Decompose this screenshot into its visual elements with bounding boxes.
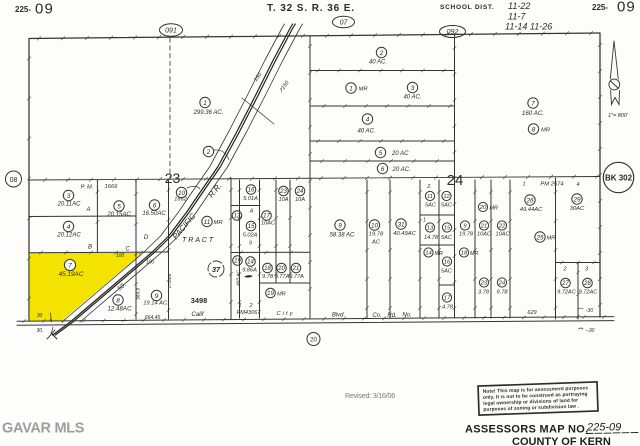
svg-text:40 AC.: 40 AC.: [369, 60, 387, 66]
svg-text:11-7: 11-7: [508, 12, 526, 22]
svg-text:MR: MR: [470, 251, 478, 257]
svg-text:A: A: [249, 209, 254, 215]
svg-text:5: 5: [117, 203, 121, 210]
svg-text:11: 11: [204, 219, 211, 226]
svg-text:09: 09: [617, 0, 636, 16]
svg-text:MR: MR: [490, 206, 498, 212]
svg-text:4: 4: [577, 182, 580, 188]
svg-text:225-: 225-: [15, 5, 31, 14]
svg-text:8: 8: [532, 126, 536, 133]
svg-text:9.72AC: 9.72AC: [579, 290, 599, 296]
svg-text:37: 37: [212, 265, 221, 274]
svg-text:16: 16: [248, 188, 255, 194]
svg-text:City: City: [277, 311, 295, 317]
svg-text:19.14 AC.: 19.14 AC.: [143, 301, 169, 307]
svg-text:9.86A: 9.86A: [242, 268, 257, 274]
svg-text:3: 3: [411, 85, 415, 92]
svg-text:3: 3: [67, 193, 71, 200]
svg-text:11: 11: [427, 194, 433, 200]
svg-text:17: 17: [444, 296, 451, 302]
svg-text:27: 27: [561, 281, 569, 287]
svg-text:10: 10: [371, 222, 379, 229]
svg-text:28: 28: [583, 281, 591, 287]
svg-text:2: 2: [249, 303, 253, 309]
svg-text:1: 1: [523, 182, 526, 188]
svg-text:25: 25: [535, 234, 544, 241]
svg-text:1: 1: [239, 303, 242, 309]
svg-text:9: 9: [338, 222, 342, 229]
svg-text:10A: 10A: [295, 197, 305, 203]
svg-text:20: 20: [479, 205, 487, 211]
svg-text:15: 15: [248, 224, 255, 230]
svg-text:ASSESSORS MAP NO.: ASSESSORS MAP NO.: [465, 424, 588, 436]
svg-text:13: 13: [427, 226, 434, 232]
svg-text:2: 2: [562, 267, 567, 273]
svg-text:5AC: 5AC: [425, 203, 437, 209]
svg-text:--30: --30: [586, 328, 595, 334]
svg-text:225-: 225-: [592, 3, 608, 12]
svg-text:5AC: 5AC: [441, 235, 453, 241]
svg-text:9: 9: [155, 293, 159, 300]
svg-text:16: 16: [444, 260, 451, 266]
svg-text:MR: MR: [547, 236, 556, 242]
svg-text:21: 21: [292, 266, 300, 272]
svg-text:20 AC.: 20 AC.: [392, 167, 411, 173]
svg-text:10AC: 10AC: [261, 221, 276, 227]
svg-text:9.72AC: 9.72AC: [557, 290, 577, 296]
svg-text:No.: No.: [402, 313, 411, 319]
svg-text:100: 100: [146, 260, 155, 266]
svg-text:19.78: 19.78: [459, 232, 474, 238]
svg-text:A: A: [85, 207, 90, 213]
svg-text:12: 12: [234, 214, 241, 220]
svg-text:21: 21: [480, 224, 487, 230]
svg-text:5.02A: 5.02A: [243, 233, 258, 239]
svg-text:369.9: 369.9: [136, 288, 142, 300]
svg-text:Co.: Co.: [372, 313, 381, 319]
svg-text:08: 08: [10, 177, 18, 184]
svg-text:MR: MR: [277, 292, 286, 298]
svg-text:11-14 11-26: 11-14 11-26: [505, 22, 552, 32]
svg-text:9.78: 9.78: [497, 290, 509, 296]
svg-text:160 AC.: 160 AC.: [522, 110, 544, 117]
svg-text:1″= 800': 1″= 800': [608, 113, 629, 119]
svg-text:12.48AC: 12.48AC: [107, 306, 132, 313]
svg-text:19: 19: [234, 259, 241, 265]
svg-text:PM43067: PM43067: [237, 310, 262, 316]
svg-text:29: 29: [572, 196, 581, 203]
svg-text:30.: 30.: [37, 328, 44, 334]
svg-text:16.50AC: 16.50AC: [142, 211, 166, 217]
svg-text:493 AC: 493 AC: [236, 270, 242, 286]
svg-text:100: 100: [116, 253, 125, 259]
svg-text:19: 19: [267, 291, 274, 297]
svg-text:3498: 3498: [191, 296, 207, 305]
svg-text:1: 1: [349, 85, 353, 92]
svg-text:1: 1: [203, 100, 207, 107]
svg-text:07: 07: [340, 20, 349, 27]
svg-text:9.77A: 9.77A: [275, 274, 290, 280]
svg-text:1: 1: [423, 218, 426, 224]
svg-text:24: 24: [498, 281, 505, 287]
svg-text:1662: 1662: [174, 197, 187, 203]
svg-text:5: 5: [379, 150, 383, 157]
svg-text:17: 17: [263, 214, 270, 220]
svg-text:↗150: ↗150: [278, 79, 291, 95]
svg-text:7: 7: [531, 100, 535, 107]
svg-text:Rd.: Rd.: [387, 313, 396, 319]
svg-text:31: 31: [397, 221, 405, 228]
svg-text:Calif: Calif: [191, 312, 204, 318]
svg-text:40 AC.: 40 AC.: [403, 95, 421, 101]
svg-text:B: B: [88, 245, 92, 251]
svg-text:GAVAR MLS: GAVAR MLS: [2, 421, 85, 437]
svg-text:MR: MR: [541, 128, 551, 134]
svg-text:20.15AC: 20.15AC: [106, 212, 131, 218]
svg-text:4: 4: [366, 116, 370, 123]
svg-text:4.78: 4.78: [442, 305, 454, 311]
svg-text:D: D: [144, 235, 149, 241]
svg-text:9.77A: 9.77A: [289, 274, 304, 280]
svg-text:22: 22: [498, 224, 506, 230]
svg-text:20: 20: [277, 266, 285, 272]
svg-text:19.78: 19.78: [369, 232, 384, 238]
svg-text:2.: 2.: [426, 184, 432, 190]
svg-text:49.44AC: 49.44AC: [520, 207, 543, 213]
svg-text:5AC: 5AC: [441, 269, 453, 275]
svg-text:8: 8: [116, 297, 120, 304]
svg-text:091: 091: [165, 28, 177, 35]
svg-text:14: 14: [247, 260, 254, 266]
svg-text:275.28: 275.28: [167, 273, 173, 289]
svg-text:30: 30: [37, 313, 43, 319]
svg-text:COUNTY OF KERN: COUNTY OF KERN: [512, 436, 611, 446]
svg-text:6: 6: [153, 202, 157, 209]
svg-text:MR: MR: [435, 251, 443, 257]
svg-text:23: 23: [279, 189, 287, 195]
svg-text:2: 2: [379, 50, 384, 57]
svg-text:9: 9: [249, 241, 252, 247]
svg-text:MR: MR: [359, 87, 369, 93]
svg-text:629: 629: [527, 310, 536, 316]
svg-text:PM 2574: PM 2574: [540, 182, 563, 188]
svg-text:6: 6: [381, 166, 385, 173]
svg-text:225-09: 225-09: [586, 422, 621, 434]
svg-text:-30: -30: [586, 308, 593, 314]
svg-text:9.78: 9.78: [262, 274, 274, 280]
svg-text:TRACT: TRACT: [182, 235, 215, 244]
svg-text:AC: AC: [371, 240, 381, 246]
svg-text:BK 302: BK 302: [605, 174, 633, 183]
svg-text:10AC: 10AC: [496, 232, 511, 238]
svg-text:20: 20: [310, 336, 317, 343]
svg-text:3.78: 3.78: [478, 290, 490, 296]
svg-text:11-22: 11-22: [508, 1, 530, 11]
svg-text:Revised: 3/16/06: Revised: 3/16/06: [345, 391, 395, 400]
svg-text:3: 3: [585, 267, 589, 273]
svg-text:24: 24: [296, 189, 304, 195]
svg-text:9: 9: [463, 224, 467, 230]
svg-text:23: 23: [165, 170, 181, 186]
svg-text:12: 12: [443, 194, 450, 200]
svg-text:4: 4: [67, 224, 71, 231]
svg-text:45.19AC: 45.19AC: [59, 271, 84, 278]
svg-text:7: 7: [68, 262, 72, 269]
svg-text:20 AC: 20 AC: [391, 151, 409, 157]
svg-text:20.11AC: 20.11AC: [57, 202, 82, 208]
svg-text:40 AC.: 40 AC.: [357, 129, 375, 135]
svg-text:Blvd.: Blvd.: [332, 313, 345, 319]
svg-text:40.49AC: 40.49AC: [393, 231, 416, 237]
svg-text:MR: MR: [214, 220, 224, 226]
svg-text:T. 32 S. R. 36 E.: T. 32 S. R. 36 E.: [267, 3, 355, 14]
svg-text:5.01A: 5.01A: [243, 196, 258, 202]
svg-text:14: 14: [425, 251, 431, 257]
svg-text:10AC: 10AC: [477, 232, 492, 238]
svg-text:20.12AC: 20.12AC: [56, 233, 81, 239]
svg-text:26: 26: [525, 197, 534, 204]
svg-text:5AC: 5AC: [441, 203, 453, 209]
svg-text:SCHOOL DIST.: SCHOOL DIST.: [440, 4, 494, 11]
svg-text:09: 09: [35, 1, 54, 18]
svg-text:30AC: 30AC: [570, 206, 585, 212]
svg-text:2: 2: [206, 149, 211, 156]
svg-text:58.38 AC: 58.38 AC: [330, 233, 355, 239]
svg-text:1666: 1666: [105, 184, 119, 190]
svg-text:14.78: 14.78: [424, 235, 439, 241]
svg-text:C: C: [125, 247, 130, 253]
svg-text:23: 23: [480, 281, 488, 287]
svg-text:18: 18: [461, 251, 468, 257]
svg-text:299.36 AC.: 299.36 AC.: [193, 110, 224, 116]
svg-text:15: 15: [444, 226, 451, 232]
svg-text:P. M.: P. M.: [81, 185, 94, 191]
svg-text:10A: 10A: [279, 197, 289, 203]
svg-text:18: 18: [264, 266, 271, 272]
